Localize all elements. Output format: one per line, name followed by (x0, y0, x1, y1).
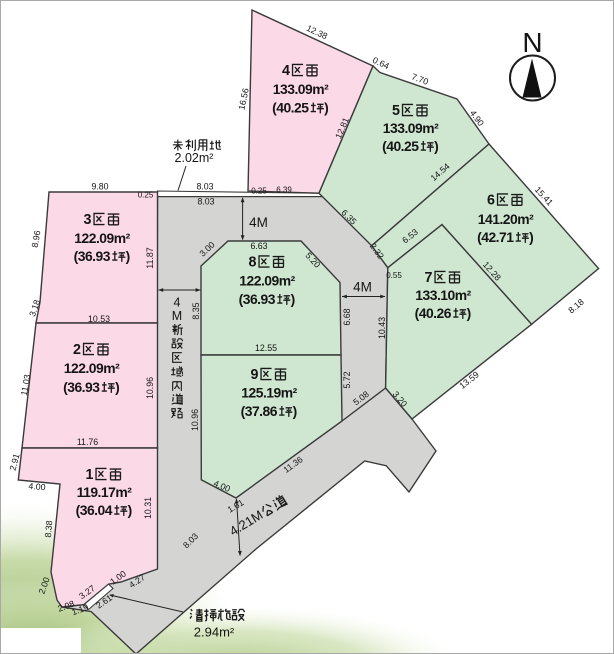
svg-text:(40.25: (40.25 (382, 138, 419, 154)
svg-text:8: 8 (249, 255, 257, 271)
svg-text:6.68: 6.68 (342, 308, 352, 325)
svg-text:2: 2 (73, 342, 81, 358)
svg-text:): ) (324, 100, 329, 116)
svg-text:5: 5 (392, 103, 400, 119)
svg-text:8.35: 8.35 (191, 302, 201, 319)
svg-text:1: 1 (86, 467, 94, 483)
svg-text:10.43: 10.43 (377, 317, 387, 339)
svg-text:(40.25: (40.25 (272, 100, 309, 116)
svg-text:): ) (434, 138, 439, 154)
svg-text:(37.86: (37.86 (241, 403, 278, 419)
svg-text:3: 3 (84, 212, 92, 228)
svg-text:(36.93: (36.93 (63, 379, 100, 395)
svg-text:): ) (291, 291, 296, 307)
svg-text:8.38: 8.38 (43, 520, 54, 538)
svg-text:): ) (115, 379, 120, 395)
svg-text:0.25: 0.25 (251, 186, 267, 195)
svg-text:133.09m²: 133.09m² (383, 120, 439, 136)
svg-text:(36.04: (36.04 (76, 502, 113, 518)
svg-text:M: M (172, 309, 182, 323)
svg-text:11.87: 11.87 (145, 247, 155, 268)
svg-text:4: 4 (174, 295, 181, 309)
svg-text:133.09m²: 133.09m² (273, 81, 329, 97)
svg-text:): ) (293, 403, 298, 419)
svg-text:): ) (126, 248, 131, 264)
svg-text:N: N (522, 27, 542, 58)
svg-text:9.80: 9.80 (91, 182, 108, 192)
svg-text:122.09m²: 122.09m² (74, 230, 130, 246)
svg-text:2.94m²: 2.94m² (194, 625, 235, 640)
svg-text:6.39: 6.39 (276, 186, 292, 195)
svg-text:4: 4 (282, 63, 290, 79)
svg-text:8.03: 8.03 (196, 182, 213, 192)
svg-text:10.53: 10.53 (88, 314, 110, 324)
svg-text:4M: 4M (353, 279, 372, 294)
svg-text:2.02m²: 2.02m² (175, 151, 214, 165)
svg-text:133.10m²: 133.10m² (415, 287, 471, 303)
svg-text:5.72: 5.72 (342, 371, 352, 388)
svg-text:0.55: 0.55 (386, 271, 402, 280)
svg-text:(36.93: (36.93 (239, 291, 276, 307)
svg-text:(36.93: (36.93 (74, 248, 111, 264)
svg-text:0.25: 0.25 (138, 190, 154, 199)
svg-text:122.09m²: 122.09m² (239, 273, 295, 289)
svg-text:): ) (128, 502, 133, 518)
svg-text:122.09m²: 122.09m² (64, 360, 120, 376)
svg-text:10.31: 10.31 (143, 497, 153, 519)
svg-text:12.55: 12.55 (255, 343, 277, 353)
svg-text:): ) (467, 305, 472, 321)
svg-text:125.19m²: 125.19m² (241, 385, 297, 401)
svg-text:119.17m²: 119.17m² (77, 484, 133, 500)
svg-text:(42.71: (42.71 (477, 229, 514, 245)
svg-text:10.96: 10.96 (190, 409, 200, 431)
svg-text:): ) (529, 229, 534, 245)
svg-text:7: 7 (425, 270, 433, 286)
svg-text:6.63: 6.63 (250, 241, 267, 251)
svg-text:10.96: 10.96 (145, 377, 155, 399)
svg-text:4.00: 4.00 (28, 481, 46, 492)
svg-text:141.20m²: 141.20m² (478, 211, 534, 227)
svg-text:6: 6 (487, 193, 495, 209)
svg-text:4M: 4M (249, 215, 268, 230)
svg-text:11.76: 11.76 (77, 437, 98, 447)
svg-text:8.03: 8.03 (197, 197, 214, 207)
svg-text:(40.26: (40.26 (415, 305, 452, 321)
svg-text:9: 9 (251, 367, 259, 383)
